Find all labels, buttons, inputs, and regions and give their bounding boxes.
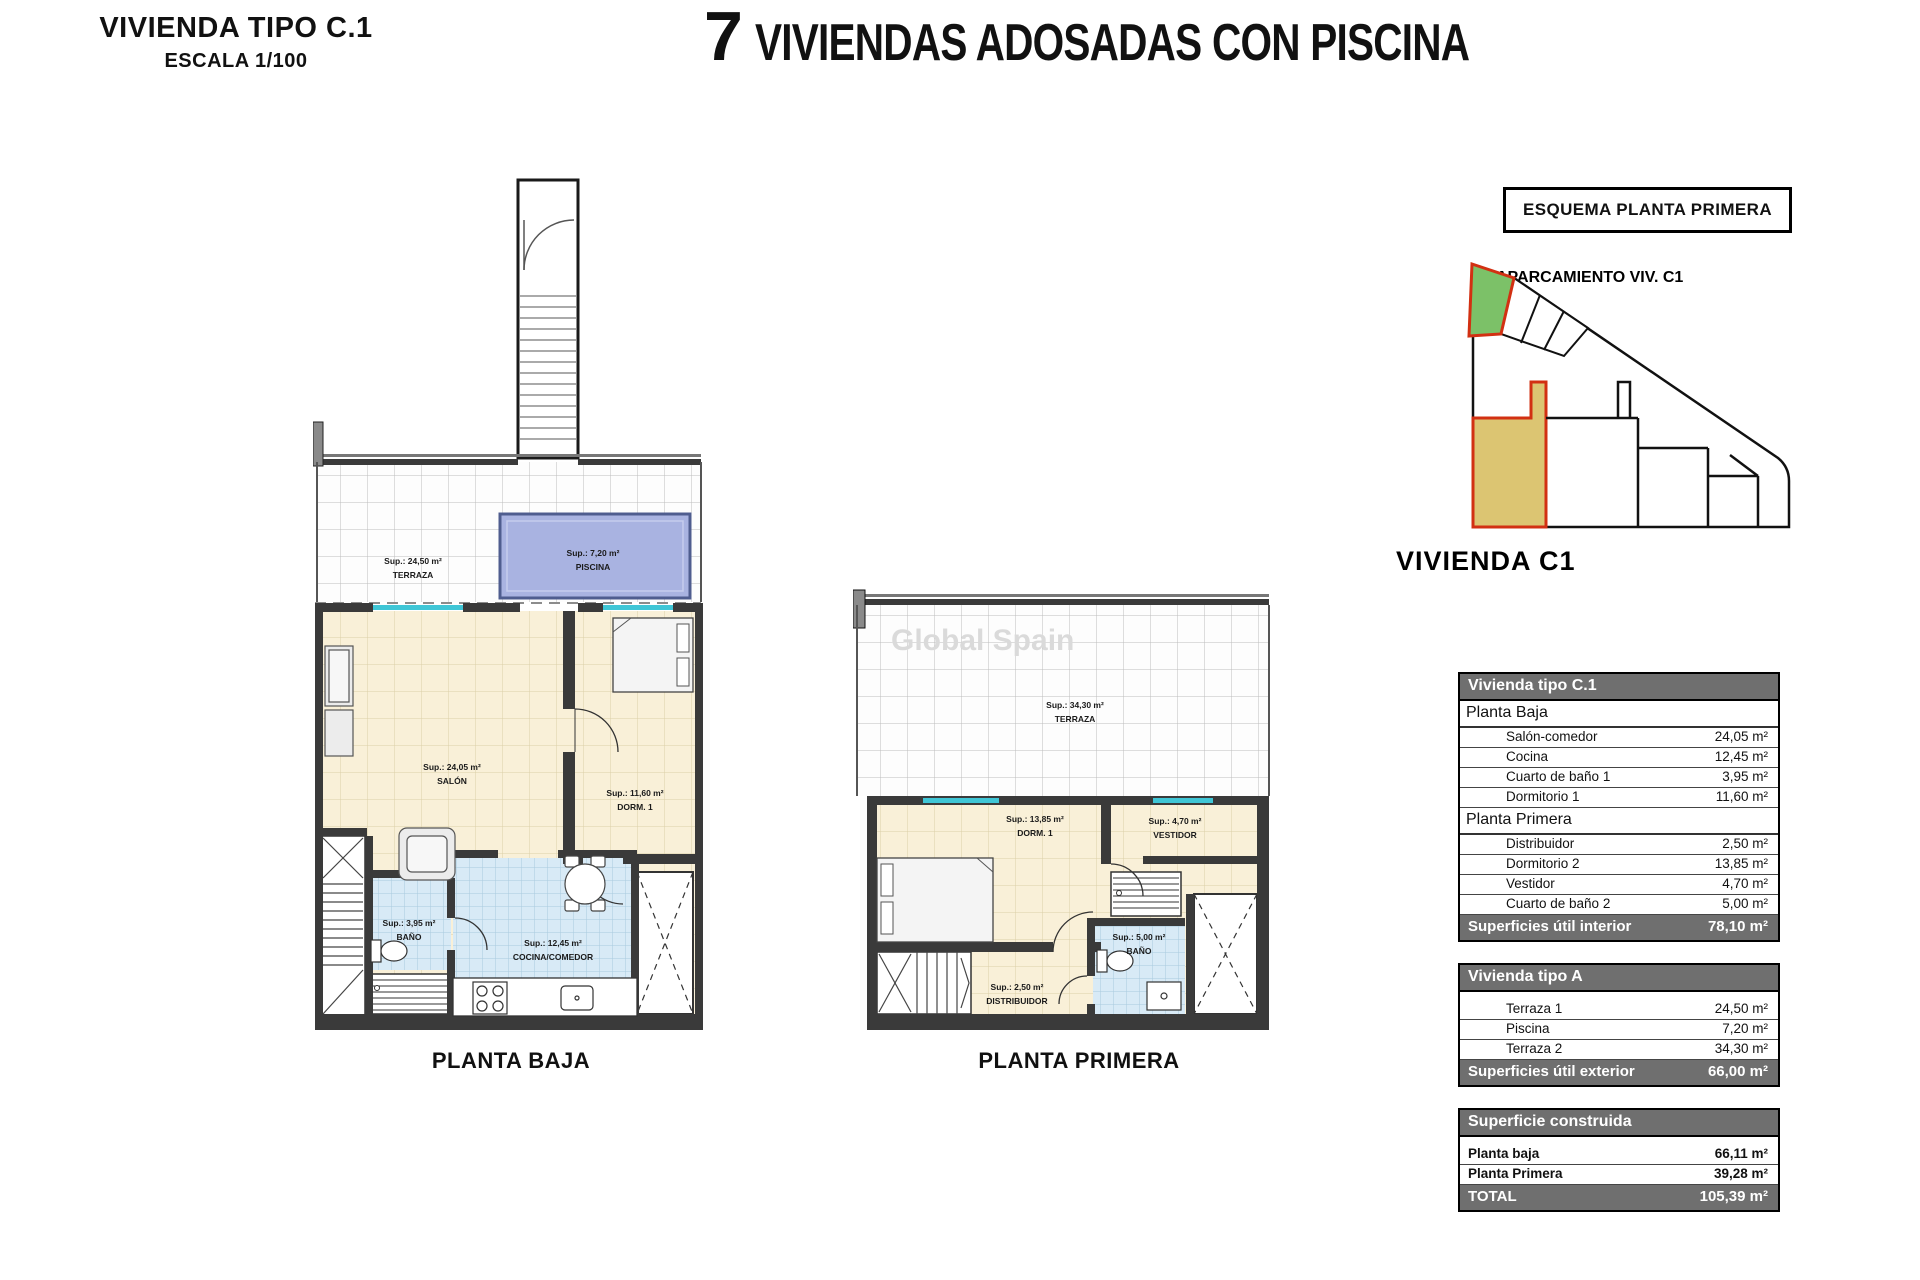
table-footer: Superficies útil exterior66,00 m²: [1460, 1060, 1778, 1085]
photo-watermark: Global Spain: [891, 624, 1074, 657]
table-superficie-construida: Superficie construida Planta baja66,11 m…: [1458, 1108, 1780, 1212]
patio-void: [637, 872, 693, 1014]
shower: [1147, 982, 1181, 1010]
dining-table: [565, 856, 605, 911]
caption-planta-primera: PLANTA PRIMERA: [973, 1048, 1185, 1074]
main-title: 7 VIVIENDAS ADOSADAS CON PISCINA: [704, 0, 1671, 74]
row-value: 24,05 m²: [1715, 729, 1768, 745]
room-label-bano2: BAÑO: [1126, 946, 1151, 956]
table-row: Cuarto de baño 25,00 m²: [1460, 895, 1778, 915]
sheet-title-block: VIVIENDA TIPO C.1 ESCALA 1/100: [90, 12, 382, 73]
interior-stair: [321, 836, 365, 1016]
table-section: Planta Primera: [1460, 808, 1778, 835]
row-label: Planta Primera: [1468, 1166, 1563, 1182]
wardrobe: [1111, 872, 1181, 916]
footer-label: Superficies útil exterior: [1468, 1063, 1635, 1080]
row-value: 7,20 m²: [1722, 1021, 1768, 1037]
row-value: 11,60 m²: [1716, 789, 1768, 805]
column-post: [853, 590, 865, 628]
footer-value: 105,39 m²: [1700, 1188, 1768, 1205]
row-value: 34,30 m²: [1715, 1041, 1768, 1057]
table-row: Dormitorio 111,60 m²: [1460, 788, 1778, 808]
room-label-vestidor: VESTIDOR: [1153, 830, 1196, 840]
table-row: Cocina12,45 m²: [1460, 748, 1778, 768]
room-label-bano: BAÑO: [396, 932, 421, 942]
table-row: Dormitorio 213,85 m²: [1460, 855, 1778, 875]
table-title: Vivienda tipo C.1: [1460, 674, 1778, 701]
glass-window: [603, 605, 673, 610]
row-value: 4,70 m²: [1722, 876, 1768, 892]
room-label-terraza: TERRAZA: [393, 570, 434, 580]
row-label: Terraza 1: [1506, 1001, 1562, 1017]
row-label: Salón-comedor: [1506, 729, 1598, 745]
table-row: Piscina7,20 m²: [1460, 1020, 1778, 1040]
room-label-terraza-sup: Sup.: 24,50 m²: [384, 556, 442, 566]
stair-tower: [518, 180, 578, 458]
sheet-scale: ESCALA 1/100: [90, 50, 382, 73]
terrace: [853, 590, 1269, 796]
sink: [561, 986, 593, 1010]
table-section: Planta Baja: [1460, 701, 1778, 728]
row-value: 13,85 m²: [1715, 856, 1768, 872]
table-spacer: [1460, 992, 1778, 1000]
row-label: Cuarto de baño 1: [1506, 769, 1610, 785]
table-row: Planta baja66,11 m²: [1460, 1145, 1778, 1165]
table-vivienda-c1: Vivienda tipo C.1 Planta Baja Salón-come…: [1458, 672, 1780, 942]
row-label: Cocina: [1506, 749, 1548, 765]
row-label: Terraza 2: [1506, 1041, 1562, 1057]
floor-plan-planta-primera: Global Spain Sup.: 34,30 m² TERRAZA: [853, 588, 1273, 1038]
room-label-terraza2: TERRAZA: [1055, 714, 1096, 724]
interior-stair: [877, 952, 971, 1014]
room-label-bano2-sup: Sup.: 5,00 m²: [1113, 932, 1166, 942]
row-label: Piscina: [1506, 1021, 1550, 1037]
kitchen-counter: [453, 978, 637, 1016]
vivienda-c1-highlight: [1473, 382, 1546, 527]
room-label-bano-sup: Sup.: 3,95 m²: [383, 918, 436, 928]
column-post: [313, 422, 323, 466]
floor-plan-planta-baja: Sup.: 7,20 m² PISCINA Sup.: 24,50 m² TER…: [313, 178, 705, 1038]
patio-void: [1194, 894, 1257, 1014]
table-row: Vestidor4,70 m²: [1460, 875, 1778, 895]
bed: [877, 858, 993, 942]
footer-label: Superficies útil interior: [1468, 918, 1631, 935]
table-title: Vivienda tipo A: [1460, 965, 1778, 992]
room-label-dorm2: DORM. 1: [1017, 828, 1053, 838]
room-label-dorm1: DORM. 1: [617, 802, 653, 812]
row-value: 39,28 m²: [1714, 1166, 1768, 1182]
room-label-salon-sup: Sup.: 24,05 m²: [423, 762, 481, 772]
row-label: Dormitorio 1: [1506, 789, 1580, 805]
room-label-dorm2-sup: Sup.: 13,85 m²: [1006, 814, 1064, 824]
area-tables: Vivienda tipo C.1 Planta Baja Salón-come…: [1458, 672, 1780, 1233]
room-label-salon: SALÓN: [437, 775, 467, 786]
main-title-number: 7: [704, 0, 743, 74]
table-spacer: [1460, 1137, 1778, 1145]
table-row: Salón-comedor24,05 m²: [1460, 728, 1778, 748]
room-label-dorm1-sup: Sup.: 11,60 m²: [606, 788, 663, 798]
row-value: 12,45 m²: [1715, 749, 1768, 765]
row-label: Dormitorio 2: [1506, 856, 1580, 872]
terrace-rail: [315, 454, 701, 457]
row-label: Cuarto de baño 2: [1506, 896, 1610, 912]
room-label-distribuidor-sup: Sup.: 2,50 m²: [991, 982, 1044, 992]
table-footer: TOTAL105,39 m²: [1460, 1185, 1778, 1210]
footer-value: 78,10 m²: [1708, 918, 1768, 935]
main-title-text: VIVIENDAS ADOSADAS CON PISCINA: [755, 14, 1469, 74]
bed: [613, 618, 693, 692]
row-label: Planta baja: [1468, 1146, 1539, 1162]
table-row: Terraza 234,30 m²: [1460, 1040, 1778, 1060]
glass-window: [923, 798, 999, 803]
footer-value: 66,00 m²: [1708, 1063, 1768, 1080]
room-label-piscina: PISCINA: [576, 562, 610, 572]
table-footer: Superficies útil interior78,10 m²: [1460, 915, 1778, 940]
table-vivienda-a: Vivienda tipo A Terraza 124,50 m² Piscin…: [1458, 963, 1780, 1087]
row-value: 2,50 m²: [1722, 836, 1768, 852]
sofa: [325, 646, 353, 756]
parking-slots: [1501, 278, 1588, 356]
row-value: 66,11 m²: [1715, 1146, 1768, 1162]
plan-sheet: VIVIENDA TIPO C.1 ESCALA 1/100 7 VIVIEND…: [0, 0, 1920, 1280]
table-row: Cuarto de baño 13,95 m²: [1460, 768, 1778, 788]
room-label-cocina-sup: Sup.: 12,45 m²: [524, 938, 582, 948]
caption-planta-baja: PLANTA BAJA: [403, 1048, 619, 1074]
stove: [473, 982, 507, 1014]
row-value: 5,00 m²: [1722, 896, 1768, 912]
table-row: Planta Primera39,28 m²: [1460, 1165, 1778, 1185]
site-schema: APARCAMIENTO VIV. C1 VIVIENDA C1: [1390, 248, 1800, 583]
room-label-terraza2-sup: Sup.: 34,30 m²: [1046, 700, 1104, 710]
room-label-vestidor-sup: Sup.: 4,70 m²: [1149, 816, 1202, 826]
glass-window: [1153, 798, 1213, 803]
neighbour-units: [1546, 382, 1758, 527]
glass-door: [373, 605, 463, 610]
armchair: [399, 828, 455, 880]
footer-label: TOTAL: [1468, 1188, 1517, 1205]
table-row: Terraza 124,50 m²: [1460, 1000, 1778, 1020]
unit-label: VIVIENDA C1: [1396, 546, 1576, 576]
schema-title-box: ESQUEMA PLANTA PRIMERA: [1503, 187, 1792, 233]
toilet: [371, 940, 407, 962]
row-label: Distribuidor: [1506, 836, 1574, 852]
row-value: 3,95 m²: [1722, 769, 1768, 785]
table-row: Distribuidor2,50 m²: [1460, 835, 1778, 855]
table-title: Superficie construida: [1460, 1110, 1778, 1137]
row-value: 24,50 m²: [1715, 1001, 1768, 1017]
terrace-rail: [857, 594, 1269, 597]
room-label-distribuidor: DISTRIBUIDOR: [986, 996, 1047, 1006]
room-label-cocina: COCINA/COMEDOR: [513, 952, 593, 962]
wardrobe: [369, 974, 451, 1014]
sheet-title: VIVIENDA TIPO C.1: [90, 12, 382, 45]
row-label: Vestidor: [1506, 876, 1555, 892]
room-label-piscina-sup: Sup.: 7,20 m²: [567, 548, 620, 558]
